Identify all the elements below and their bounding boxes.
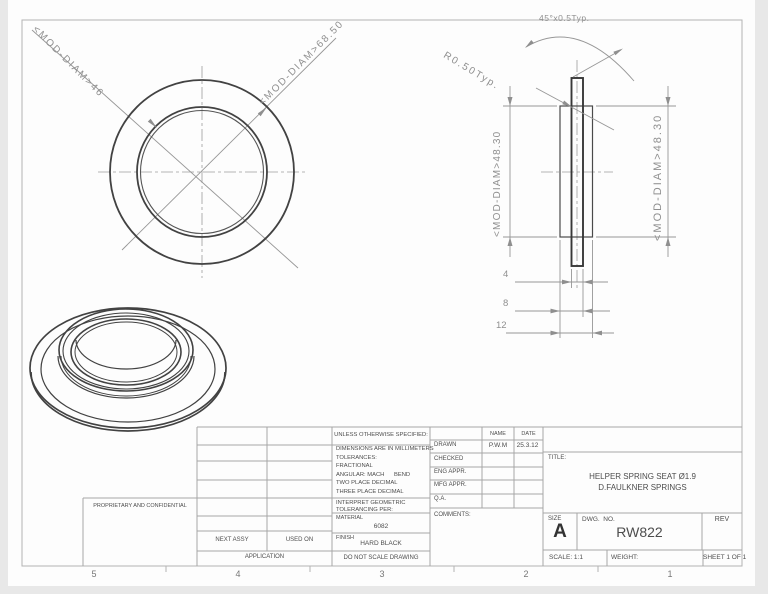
approval-row-label: ENG APPR. <box>434 469 466 476</box>
size-value: A <box>546 521 574 543</box>
title-label: TITLE: <box>548 455 566 462</box>
side-left-diameter-label: <MOD-DIAM>48.30 <box>492 131 503 237</box>
side-right-diameter-label: <MOD-DIAM>48.30 <box>652 114 664 241</box>
application-label: APPLICATION <box>197 554 332 561</box>
zone-number: 1 <box>650 569 690 579</box>
weight-label: WEIGHT: <box>611 554 638 561</box>
dwg-no-value: RW822 <box>577 524 702 540</box>
used-on-label: USED ON <box>267 537 332 544</box>
date-column-header: DATE <box>514 431 543 437</box>
drawn-date: 25.3.12 <box>510 442 545 449</box>
material-value: 6082 <box>332 523 430 530</box>
tolerance-note-line: DIMENSIONS ARE IN MILLIMETERS <box>336 446 434 453</box>
tolerance-note-line: FRACTIONAL <box>336 463 373 470</box>
tolerance-note-line: TOLERANCES: <box>336 455 377 462</box>
proprietary-note: PROPRIETARY AND CONFIDENTIAL <box>85 503 195 509</box>
mid-width-dim: 8 <box>503 298 508 309</box>
name-column-header: NAME <box>482 431 514 437</box>
sheet-number: SHEET 1 OF 1 <box>703 554 742 561</box>
comments-label: COMMENTS: <box>434 512 471 519</box>
approval-row-label: CHECKED <box>434 456 463 463</box>
material-label: MATERIAL <box>336 515 363 521</box>
finish-value: HARD BLACK <box>332 540 430 547</box>
isometric-view-drawing <box>30 308 226 431</box>
side-view-drawing <box>503 37 676 338</box>
dwg-no-label: DWG. NO. <box>582 516 615 523</box>
tolerance-note-line: THREE PLACE DECIMAL <box>336 489 407 496</box>
chamfer-dimension-label: 45°x0.5Typ. <box>539 13 589 23</box>
zone-number: 4 <box>218 569 258 579</box>
overall-width-dim: 12 <box>496 320 507 331</box>
interpret-geometric-note: INTERPRET GEOMETRIC <box>336 500 405 507</box>
tolerance-note-line: ANGULAR: MACH BEND <box>336 472 412 479</box>
approval-row-label: Q.A. <box>434 496 446 503</box>
drawing-title-line1: HELPER SPRING SEAT Ø1.9 <box>543 472 742 481</box>
flange-thickness-dim: 4 <box>503 269 508 280</box>
scale-value: SCALE: 1:1 <box>549 554 583 561</box>
drawing-sheet: <MOD-DIAM>46 <MOD-DIAM>68.50 45°x0.5Typ.… <box>0 0 768 594</box>
rev-label: REV <box>702 516 742 524</box>
zone-number: 3 <box>362 569 402 579</box>
tolerancing-per-note: TOLERANCING PER: <box>336 507 393 514</box>
do-not-scale-note: DO NOT SCALE DRAWING <box>332 555 430 562</box>
zone-number: 5 <box>74 569 114 579</box>
drawing-title-line2: D.FAULKNER SPRINGS <box>543 483 742 492</box>
tolerance-note-line: TWO PLACE DECIMAL <box>336 480 404 487</box>
unless-otherwise-note: UNLESS OTHERWISE SPECIFIED: <box>332 432 430 439</box>
zone-number: 2 <box>506 569 546 579</box>
next-assy-label: NEXT ASSY <box>197 537 267 544</box>
approval-row-label: DRAWN <box>434 442 456 449</box>
approval-row-label: MFG APPR. <box>434 482 467 489</box>
